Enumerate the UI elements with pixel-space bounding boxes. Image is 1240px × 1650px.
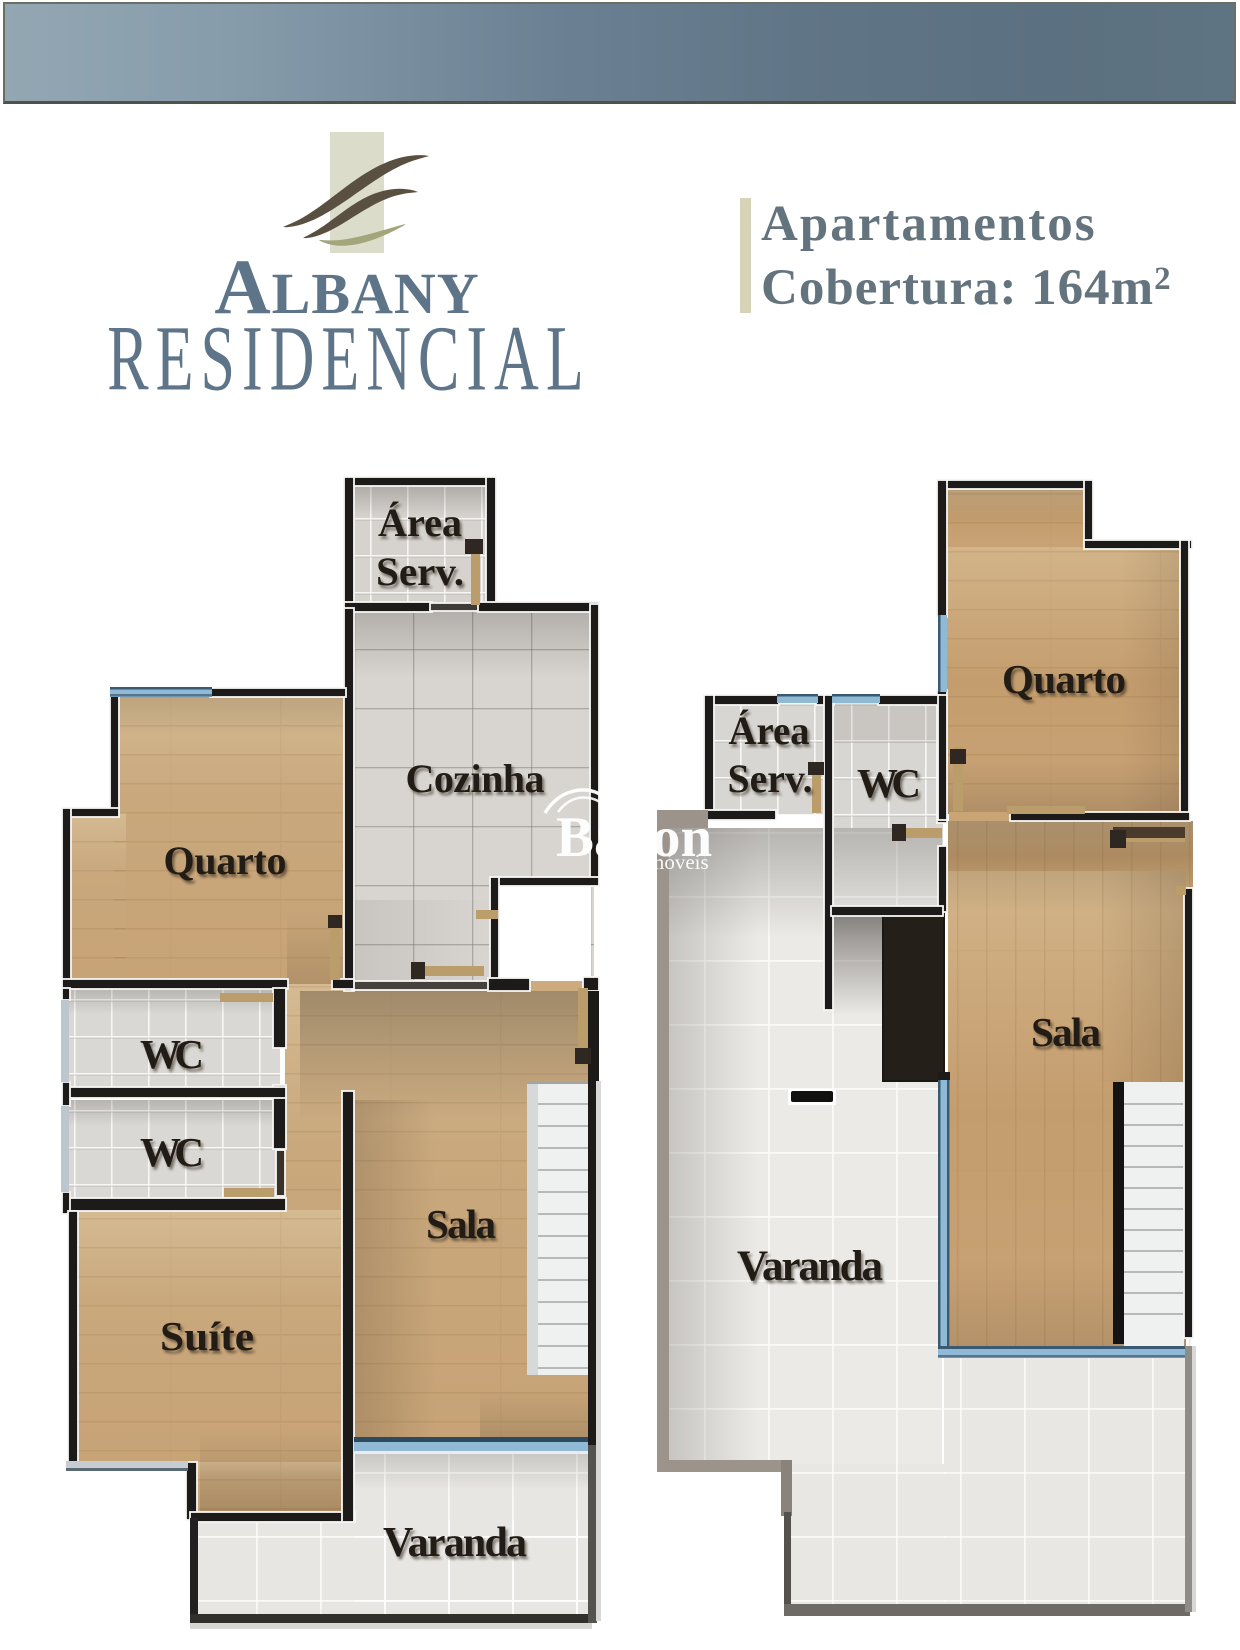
svg-text:WC: WC: [140, 1129, 204, 1175]
svg-text:Suíte: Suíte: [160, 1313, 254, 1359]
svg-text:Varanda: Varanda: [383, 1520, 527, 1566]
svg-text:Sala: Sala: [426, 1201, 496, 1247]
svg-text:Quarto: Quarto: [164, 838, 287, 883]
svg-text:Serv.: Serv.: [728, 756, 813, 801]
svg-text:móveis: móveis: [648, 850, 709, 874]
svg-text:Serv.: Serv.: [376, 549, 464, 594]
svg-text:Sala: Sala: [1031, 1009, 1101, 1055]
svg-text:Cozinha: Cozinha: [406, 756, 545, 801]
svg-text:WC: WC: [857, 760, 921, 806]
svg-text:Área: Área: [378, 500, 462, 545]
svg-text:Ba: Ba: [556, 806, 623, 869]
svg-text:Varanda: Varanda: [737, 1243, 883, 1290]
svg-text:Quarto: Quarto: [1002, 656, 1126, 702]
svg-text:Área: Área: [729, 708, 810, 753]
svg-text:WC: WC: [140, 1031, 204, 1077]
